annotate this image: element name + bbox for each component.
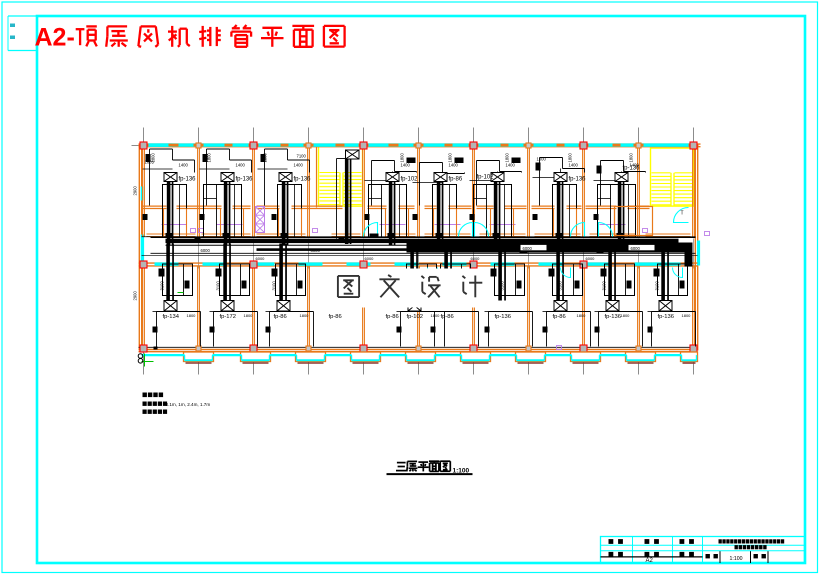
svg-text:1000: 1000	[537, 157, 547, 162]
svg-text:T: T	[681, 211, 684, 217]
svg-text:6000: 6000	[471, 256, 481, 261]
svg-text:3100: 3100	[160, 281, 165, 291]
svg-text:1800: 1800	[151, 153, 156, 163]
svg-text:1800: 1800	[263, 153, 268, 163]
svg-text:3100: 3100	[655, 281, 660, 291]
svg-text:1800: 1800	[300, 313, 310, 318]
svg-text:fp-136: fp-136	[495, 314, 511, 320]
svg-text:6000: 6000	[365, 256, 375, 261]
svg-text:1800: 1800	[682, 313, 692, 318]
svg-text:fp-136: fp-136	[658, 314, 674, 320]
svg-text:1800: 1800	[448, 153, 453, 163]
svg-text:6000: 6000	[586, 256, 596, 261]
svg-text:1:100: 1:100	[730, 556, 743, 562]
svg-text:1800: 1800	[621, 313, 631, 318]
svg-text:3.1m, 1m, 2.4m, 1.7m: 3.1m, 1m, 2.4m, 1.7m	[166, 402, 211, 407]
svg-text:1800: 1800	[568, 153, 573, 163]
svg-text:fp-102: fp-102	[401, 177, 419, 183]
svg-text:3100: 3100	[500, 281, 505, 291]
svg-text:6000: 6000	[523, 246, 533, 251]
svg-text:3100: 3100	[602, 281, 607, 291]
svg-text:fp-102: fp-102	[477, 175, 495, 181]
svg-text:A2-: A2-	[35, 24, 75, 52]
svg-text:A2: A2	[646, 558, 654, 564]
svg-text:6000: 6000	[311, 248, 321, 253]
svg-text:fp-136: fp-136	[179, 177, 197, 183]
svg-text:fp-102: fp-102	[407, 314, 423, 320]
svg-text:fp-136: fp-136	[236, 177, 254, 183]
svg-text:fp-86: fp-86	[274, 314, 287, 320]
svg-text:1400: 1400	[294, 163, 304, 168]
svg-text:fp-172: fp-172	[220, 314, 236, 320]
svg-text:1800: 1800	[431, 313, 441, 318]
svg-text:fp-136: fp-136	[605, 314, 621, 320]
svg-text:1800: 1800	[505, 153, 510, 163]
svg-text:1800: 1800	[577, 313, 587, 318]
svg-text:1800: 1800	[187, 313, 197, 318]
svg-text:1800: 1800	[400, 153, 405, 163]
svg-text:6000: 6000	[631, 246, 641, 251]
svg-text:2900: 2900	[133, 291, 138, 301]
svg-text:2900: 2900	[133, 186, 138, 196]
svg-text:fp-134: fp-134	[163, 314, 180, 320]
svg-text:1400: 1400	[179, 163, 189, 168]
svg-text:fp-136: fp-136	[569, 177, 587, 183]
svg-text:6000: 6000	[201, 248, 211, 253]
svg-text:7100: 7100	[297, 154, 307, 159]
svg-text:6000: 6000	[256, 256, 266, 261]
svg-text:fp-86: fp-86	[441, 314, 454, 320]
svg-text:fp-86: fp-86	[329, 314, 342, 320]
svg-text:fp-86: fp-86	[553, 314, 566, 320]
svg-text:3100: 3100	[272, 281, 277, 291]
svg-text:fp-136: fp-136	[294, 177, 312, 183]
svg-text:1800: 1800	[207, 153, 212, 163]
svg-text:3100: 3100	[216, 281, 221, 291]
svg-text:3100: 3100	[558, 281, 563, 291]
svg-text:1800: 1800	[244, 313, 254, 318]
svg-text:fp-86: fp-86	[449, 177, 463, 183]
svg-text:1800: 1800	[629, 153, 634, 163]
svg-text:fp-86: fp-86	[386, 314, 399, 320]
svg-text:1400: 1400	[236, 163, 246, 168]
